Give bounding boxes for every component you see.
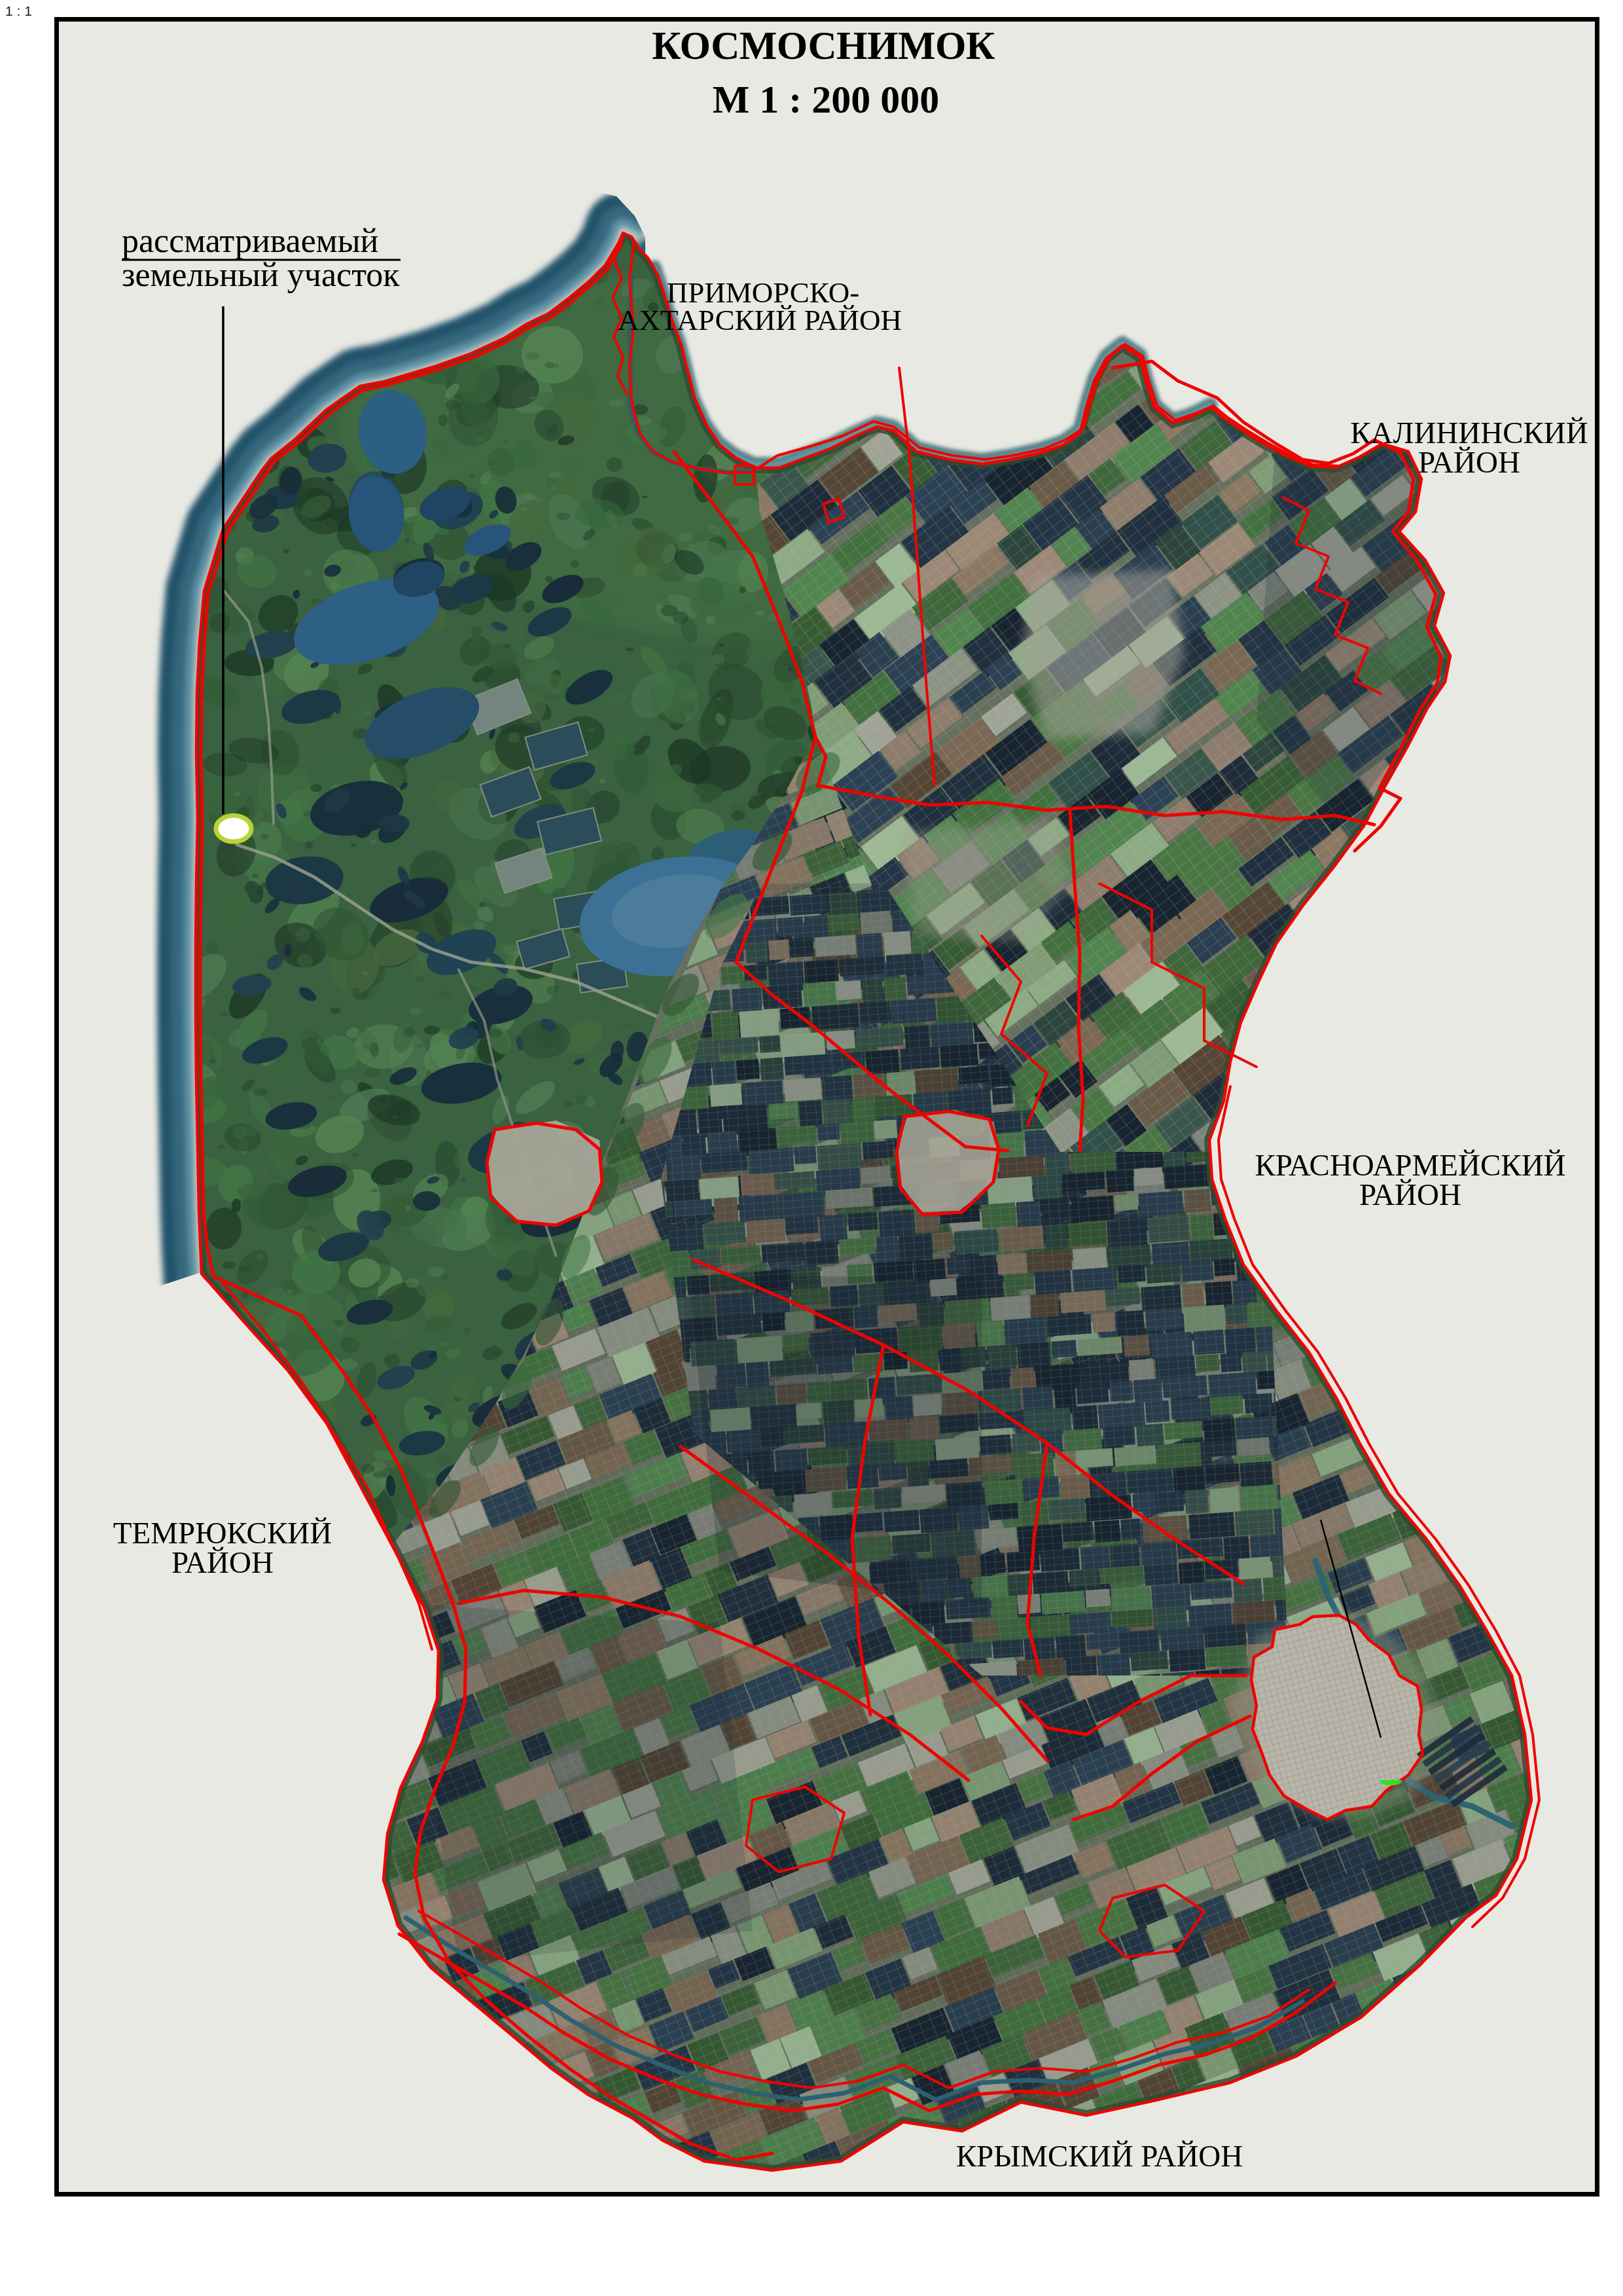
svg-text:М 1 : 200 000: М 1 : 200 000	[713, 78, 940, 121]
svg-text:1 : 1: 1 : 1	[5, 3, 32, 18]
svg-text:КОСМОСНИМОК: КОСМОСНИМОК	[652, 24, 995, 67]
svg-text:земельный участок: земельный участок	[122, 256, 400, 293]
svg-text:РАЙОН: РАЙОН	[1359, 1177, 1461, 1211]
svg-text:РАЙОН: РАЙОН	[171, 1545, 274, 1579]
svg-text:РАЙОН: РАЙОН	[1418, 445, 1520, 479]
svg-text:КРЫМСКИЙ РАЙОН: КРЫМСКИЙ РАЙОН	[956, 2139, 1243, 2173]
svg-text:АХТАРСКИЙ РАЙОН: АХТАРСКИЙ РАЙОН	[618, 304, 902, 336]
svg-text:рассматриваемый: рассматриваемый	[122, 222, 378, 259]
